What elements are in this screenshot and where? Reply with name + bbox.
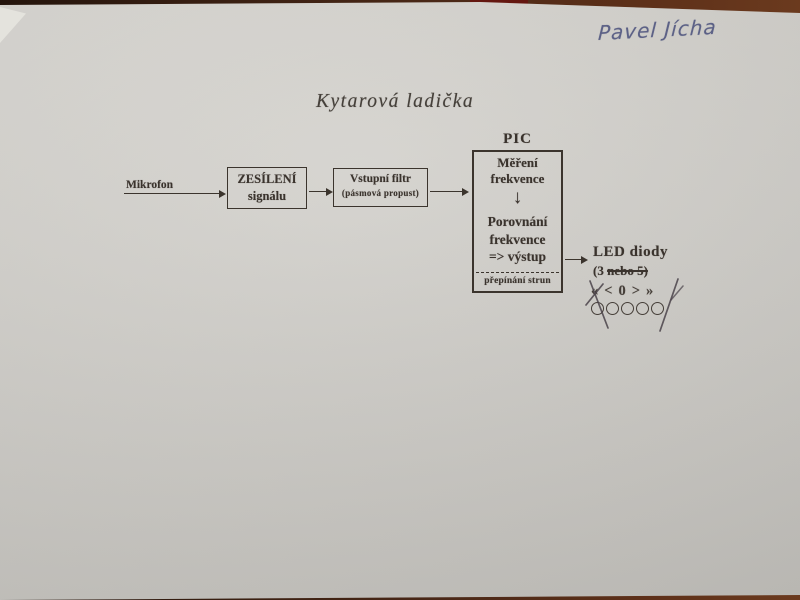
string-switch-label: přepínání strun xyxy=(474,276,561,286)
down-arrow-icon: ↓ xyxy=(474,185,561,211)
mikrofon-label: Mikrofon xyxy=(126,179,173,191)
pic-measure-block: Měření frekvence xyxy=(474,155,561,187)
pic-box: Měření frekvence ↓ Porovnání frekvence =… xyxy=(472,150,563,293)
pic-compare-line1: Porovnání xyxy=(474,213,561,231)
filter-line2: (pásmová propust) xyxy=(334,187,427,200)
arrowhead-filter-to-pic-icon xyxy=(462,188,469,196)
pic-compare-line3: => výstup xyxy=(474,248,561,266)
led-label: LED diody xyxy=(593,244,668,261)
arrow-line-amp-to-filter xyxy=(309,191,326,192)
dashed-divider xyxy=(476,272,559,273)
filter-box: Vstupní filtr (pásmová propust) xyxy=(333,168,428,207)
handwritten-name: Pavel Jícha xyxy=(597,11,788,45)
amplifier-line2: signálu xyxy=(228,188,306,205)
filter-line1: Vstupní filtr xyxy=(334,172,427,187)
pic-label: PIC xyxy=(472,131,563,148)
crossout-strokes xyxy=(580,274,700,336)
photo-of-paper: Pavel Jícha Kytarová ladička Mikrofon ZE… xyxy=(0,0,800,600)
amplifier-line1: ZESÍLENÍ xyxy=(228,171,306,188)
arrow-line-pic-to-led xyxy=(565,259,581,260)
arrow-line-filter-to-pic xyxy=(430,191,462,192)
mikrofon-arrowhead-icon xyxy=(219,190,226,198)
pic-measure-line1: Měření xyxy=(474,155,561,171)
arrowhead-amp-to-filter-icon xyxy=(326,188,333,196)
pic-compare-block: Porovnání frekvence => výstup xyxy=(474,213,561,266)
mikrofon-arrow-line xyxy=(124,193,219,194)
diagram-title: Kytarová ladička xyxy=(316,91,474,113)
amplifier-box: ZESÍLENÍ signálu xyxy=(227,167,307,209)
arrowhead-pic-to-led-icon xyxy=(581,256,588,264)
pic-compare-line2: frekvence xyxy=(474,231,561,249)
